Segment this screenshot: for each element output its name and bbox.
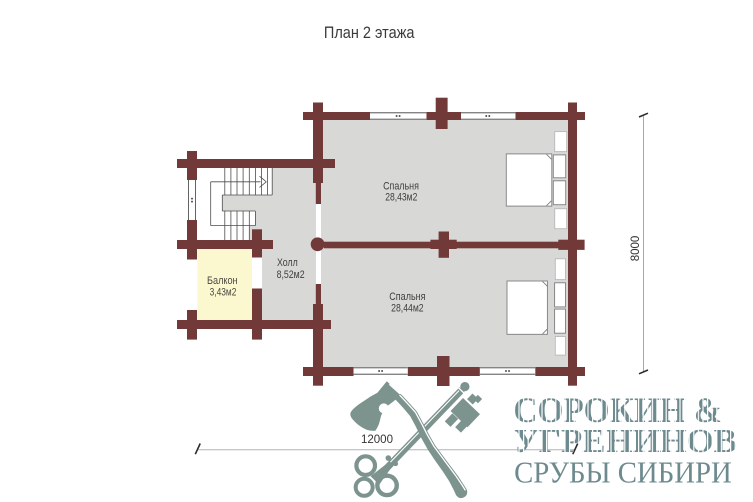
svg-text:28,43м2: 28,43м2 [385,192,417,204]
svg-text:План 2 этажа: План 2 этажа [324,24,415,42]
svg-text:Холл: Холл [277,257,298,269]
svg-text:Балкон: Балкон [207,275,238,287]
svg-text:3,43м2: 3,43м2 [210,287,237,299]
svg-text:8,52м2: 8,52м2 [277,269,305,281]
svg-text:8000: 8000 [630,236,642,262]
svg-text:СРУБЫ СИБИРИ: СРУБЫ СИБИРИ [514,454,732,489]
svg-text:12000: 12000 [361,434,393,446]
svg-text:28,44м2: 28,44м2 [391,303,424,315]
svg-text:Спальня: Спальня [389,291,425,303]
svg-text:Спальня: Спальня [383,180,419,192]
